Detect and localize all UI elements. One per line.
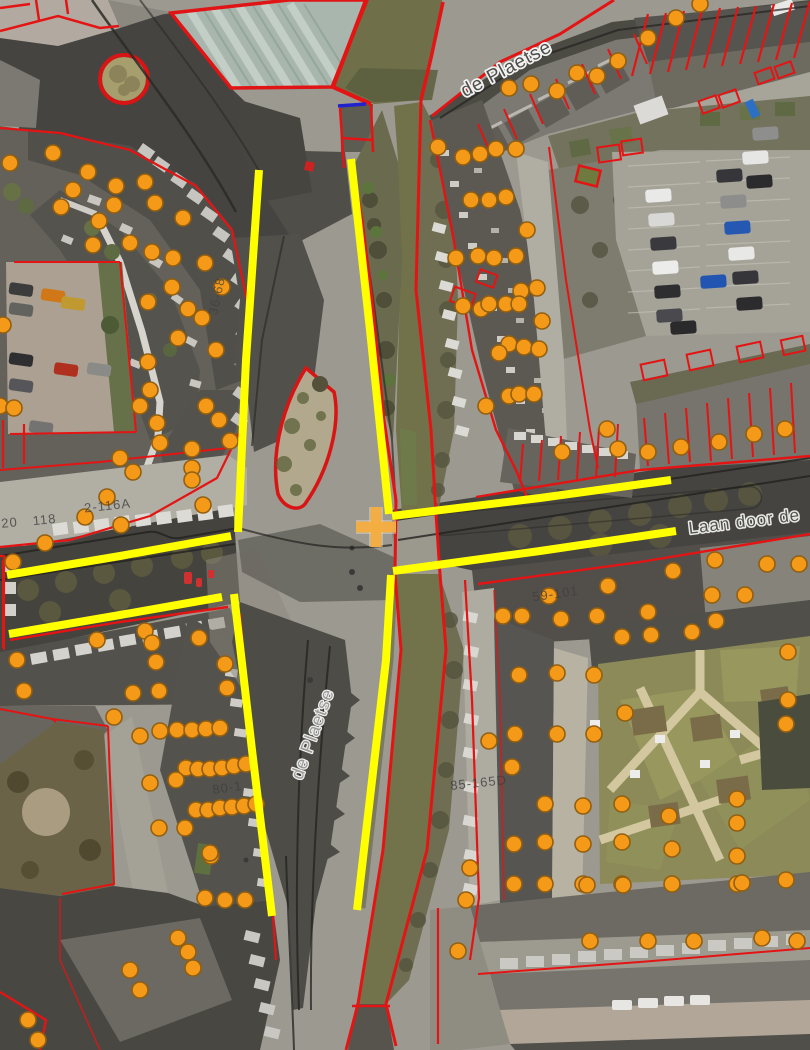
- svg-text:20: 20: [1, 514, 19, 531]
- svg-text:118: 118: [32, 511, 57, 528]
